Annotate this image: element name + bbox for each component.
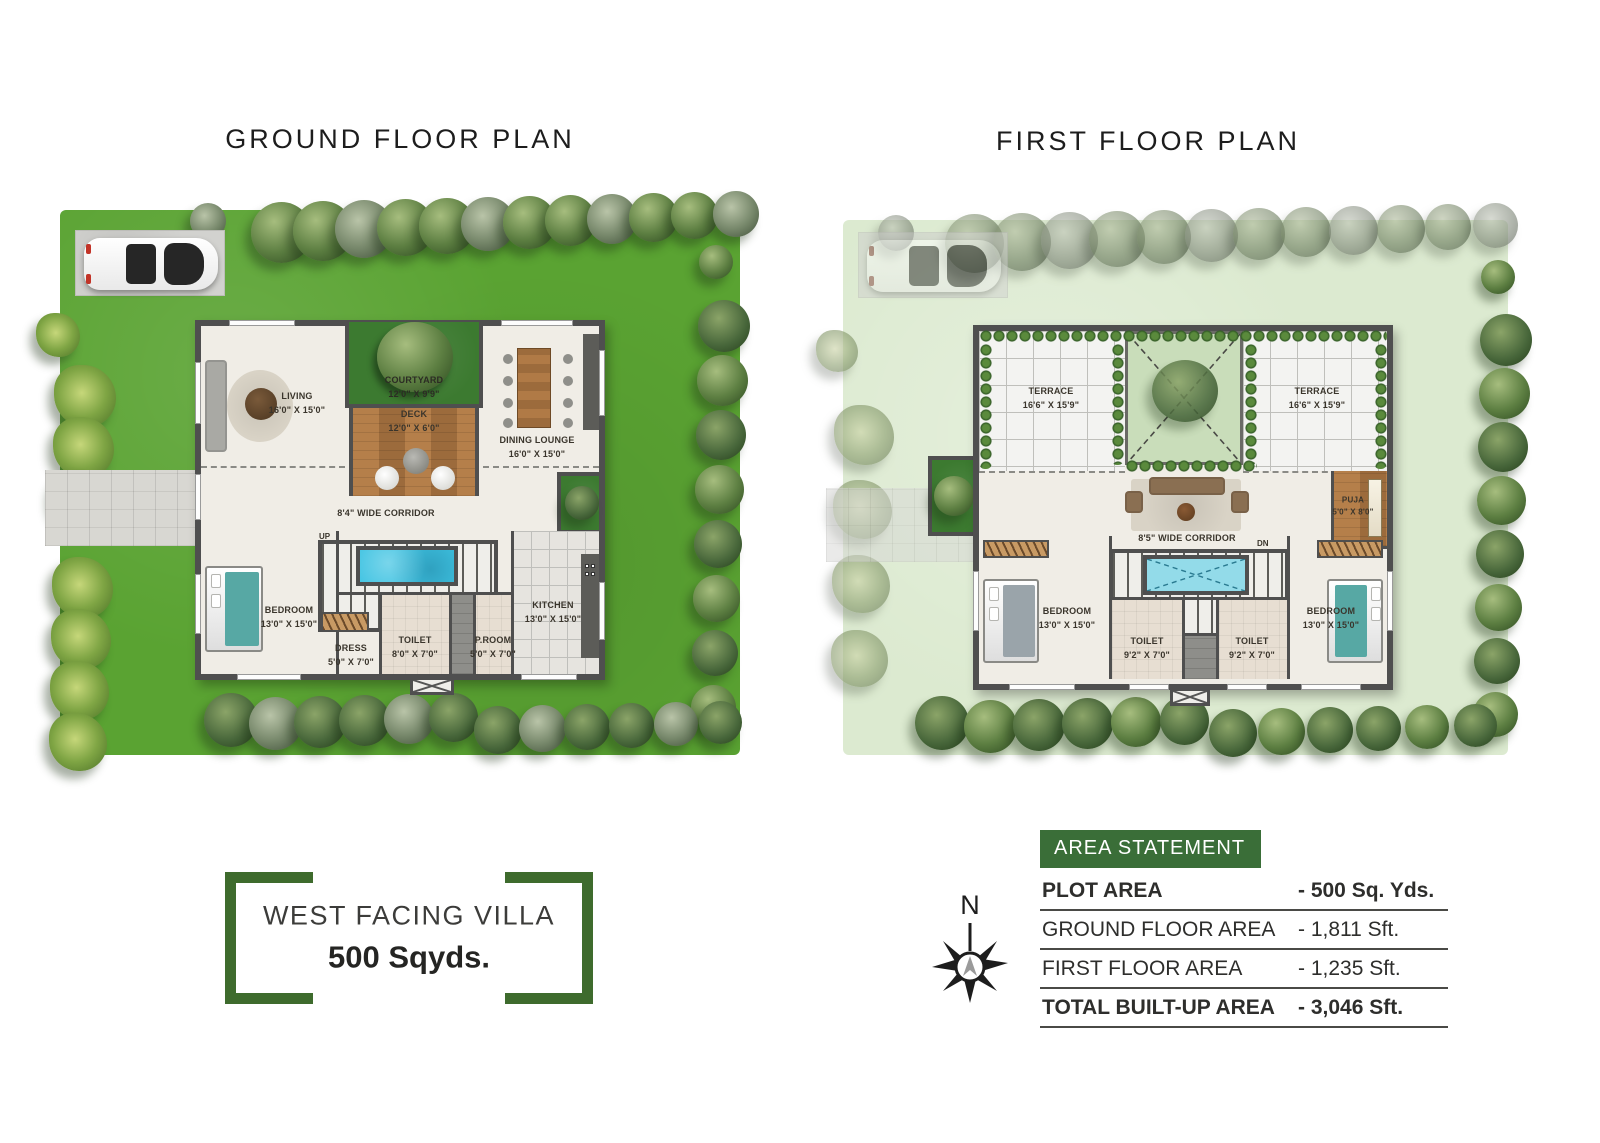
window <box>1227 684 1267 690</box>
tree <box>713 191 759 237</box>
dining-chairs <box>503 354 513 364</box>
window <box>599 582 605 640</box>
room-label-bedroom: BEDROOM13'0" X 15'0" <box>261 604 317 632</box>
room-label-kitchen: KITCHEN13'0" X 15'0" <box>525 599 581 627</box>
tree <box>1425 204 1471 250</box>
tree <box>915 696 969 750</box>
room-label-ff-bedroom-right: BEDROOM13'0" X 15'0" <box>1303 605 1359 633</box>
water-feature-pool <box>356 546 458 586</box>
ground-floor-house: COURTYARD12'0" X 9'9" DECK12'0" X 6'0" L… <box>195 320 605 680</box>
tree <box>1111 697 1161 747</box>
courtyard-tree-below <box>1152 360 1218 422</box>
compass: N <box>928 890 1012 1010</box>
tree <box>1062 698 1113 749</box>
tree <box>50 661 109 720</box>
villa-size-label: 500 Sqyds. <box>225 940 593 976</box>
terrace-hedge-right <box>1374 343 1387 469</box>
tree <box>1478 422 1528 472</box>
room-label-proom: P.ROOM5'0" X 7'0" <box>470 634 516 662</box>
dining-sideboard <box>583 334 599 430</box>
stairs-dn-label: DN <box>1257 539 1269 548</box>
window <box>1301 684 1361 690</box>
ff-wardrobe-left <box>983 540 1049 558</box>
tree <box>609 703 654 748</box>
window <box>229 320 295 326</box>
tree <box>699 245 733 279</box>
tree <box>699 701 742 744</box>
row-label: GROUND FLOOR AREA <box>1040 910 1296 949</box>
table-row: GROUND FLOOR AREA- 1,811 Sft. <box>1040 910 1448 949</box>
row-value: - 500 Sq. Yds. <box>1296 872 1448 910</box>
row-label: TOTAL BUILT-UP AREA <box>1040 988 1296 1027</box>
tree <box>1481 260 1515 294</box>
courtyard-hedge-bottom <box>1125 459 1257 472</box>
tree <box>1474 638 1520 684</box>
lounge-sofa <box>1149 477 1225 495</box>
ff-corridor-label: 8'5" WIDE CORRIDOR <box>1138 532 1236 546</box>
window <box>195 474 201 520</box>
ff-wardrobe-right <box>1317 540 1383 558</box>
lounge-armchair-right <box>1231 491 1249 513</box>
terrace-hedge-top <box>979 329 1387 343</box>
compass-north-label: N <box>928 890 1012 921</box>
row-value: - 3,046 Sft. <box>1296 988 1448 1027</box>
first-floor-title: FIRST FLOOR PLAN <box>818 126 1478 157</box>
pool-void-below <box>1143 555 1249 595</box>
tree <box>339 695 390 746</box>
driveway-pad-faded <box>858 232 1008 298</box>
tree <box>832 555 890 613</box>
tree <box>698 300 750 352</box>
tree <box>1233 208 1285 260</box>
courtyard-hedge-left <box>1111 343 1124 465</box>
tree <box>692 630 738 676</box>
tree <box>1377 205 1425 253</box>
terrace-hedge-left <box>979 343 992 469</box>
corridor-label: 8'4" WIDE CORRIDOR <box>337 507 435 521</box>
area-statement-header: AREA STATEMENT <box>1040 830 1261 868</box>
tree <box>384 694 434 744</box>
row-value: - 1,235 Sft. <box>1296 949 1448 988</box>
tree <box>1475 584 1522 631</box>
tree <box>49 713 107 771</box>
lounge-armchair-left <box>1125 491 1143 513</box>
ground-floor-title: GROUND FLOOR PLAN <box>40 124 760 155</box>
table-row: FIRST FLOOR AREA- 1,235 Sft. <box>1040 949 1448 988</box>
entry-step <box>410 677 454 695</box>
tree <box>816 330 858 372</box>
tree <box>1480 314 1532 366</box>
window <box>195 362 201 424</box>
bedroom-bed <box>205 566 263 652</box>
room-label-deck: DECK12'0" X 6'0" <box>388 408 439 436</box>
tree <box>834 405 894 465</box>
dining-table <box>517 348 551 428</box>
room-label-terrace-right: TERRACE16'6" X 15'9" <box>1289 385 1345 413</box>
area-statement: AREA STATEMENT PLOT AREA- 500 Sq. Yds. G… <box>1040 830 1448 1028</box>
tree <box>36 313 80 357</box>
tree <box>1405 705 1449 749</box>
entrance-walkway <box>45 470 195 546</box>
tree <box>1185 209 1238 262</box>
tree <box>654 702 698 746</box>
kitchen-counter <box>581 554 599 658</box>
tree <box>564 704 610 750</box>
room-label-ff-toilet-left: TOILET9'2" X 7'0" <box>1124 635 1170 663</box>
tree <box>696 410 746 460</box>
row-value: - 1,811 Sft. <box>1296 910 1448 949</box>
room-label-dress: DRESS5'0" X 7'0" <box>328 642 374 670</box>
window <box>1129 684 1169 690</box>
room-label-ff-toilet-right: TOILET9'2" X 7'0" <box>1229 635 1275 663</box>
tree <box>964 700 1017 753</box>
tree <box>1137 210 1191 264</box>
area-statement-table: PLOT AREA- 500 Sq. Yds. GROUND FLOOR ARE… <box>1040 872 1448 1028</box>
driveway-pad <box>75 230 225 296</box>
living-sofa <box>205 360 227 452</box>
room-label-puja: PUJA5'0" X 8'0" <box>1332 495 1373 520</box>
tree <box>1473 203 1518 248</box>
side-garden <box>557 472 599 534</box>
room-label-dining: DINING LOUNGE16'0" X 15'0" <box>499 434 574 462</box>
ff-side-garden <box>928 456 978 536</box>
ff-step <box>1170 688 1210 706</box>
row-label: FIRST FLOOR AREA <box>1040 949 1296 988</box>
window <box>237 674 301 680</box>
ff-lobby-floor <box>1182 636 1219 679</box>
tree <box>1477 476 1526 525</box>
tree <box>1476 530 1524 578</box>
tree <box>671 192 718 239</box>
tree <box>697 355 748 406</box>
villa-badge: WEST FACING VILLA 500 Sqyds. <box>225 872 593 1004</box>
tree <box>429 693 478 742</box>
tree <box>1307 707 1353 753</box>
window <box>1009 684 1075 690</box>
tree <box>831 630 888 687</box>
window <box>973 571 979 631</box>
first-floor-house: TERRACE16'6" X 15'9" TERRACE16'6" X 15'9… <box>973 325 1393 690</box>
window <box>195 574 201 634</box>
tree <box>1013 699 1065 751</box>
villa-facing-label: WEST FACING VILLA <box>225 901 593 932</box>
tree <box>1356 706 1401 751</box>
lounge-table <box>1177 503 1195 521</box>
compass-rose-icon <box>928 921 1012 1005</box>
wardrobe <box>321 612 369 632</box>
room-label-terrace-left: TERRACE16'6" X 15'9" <box>1023 385 1079 413</box>
tree <box>694 520 742 568</box>
room-label-ff-bedroom-left: BEDROOM13'0" X 15'0" <box>1039 605 1095 633</box>
tree <box>1479 368 1530 419</box>
table-row: PLOT AREA- 500 Sq. Yds. <box>1040 872 1448 910</box>
room-label-toilet: TOILET8'0" X 7'0" <box>392 634 438 662</box>
tree <box>1209 709 1257 757</box>
table-row: TOTAL BUILT-UP AREA- 3,046 Sft. <box>1040 988 1448 1027</box>
tree <box>693 575 740 622</box>
room-label-courtyard: COURTYARD12'0" X 9'9" <box>385 374 443 402</box>
tree <box>695 465 744 514</box>
tree <box>1329 206 1378 255</box>
courtyard-hedge-right <box>1244 343 1257 465</box>
tree <box>1258 708 1305 755</box>
room-label-living: LIVING16'0" X 15'0" <box>269 390 325 418</box>
window <box>599 350 605 416</box>
car-top-view <box>84 238 218 290</box>
ground-floor-plan: COURTYARD12'0" X 9'9" DECK12'0" X 6'0" L… <box>40 185 760 775</box>
first-floor-plan: TERRACE16'6" X 15'9" TERRACE16'6" X 15'9… <box>818 200 1533 775</box>
courtyard-void <box>1125 331 1243 465</box>
row-label: PLOT AREA <box>1040 872 1296 910</box>
tree <box>1281 207 1331 257</box>
window <box>1387 571 1393 631</box>
window <box>521 674 577 680</box>
tree <box>519 705 566 752</box>
window <box>501 320 573 326</box>
tree <box>51 609 111 669</box>
tree <box>474 706 522 754</box>
tree <box>1454 704 1497 747</box>
ff-bed-left <box>983 579 1039 663</box>
